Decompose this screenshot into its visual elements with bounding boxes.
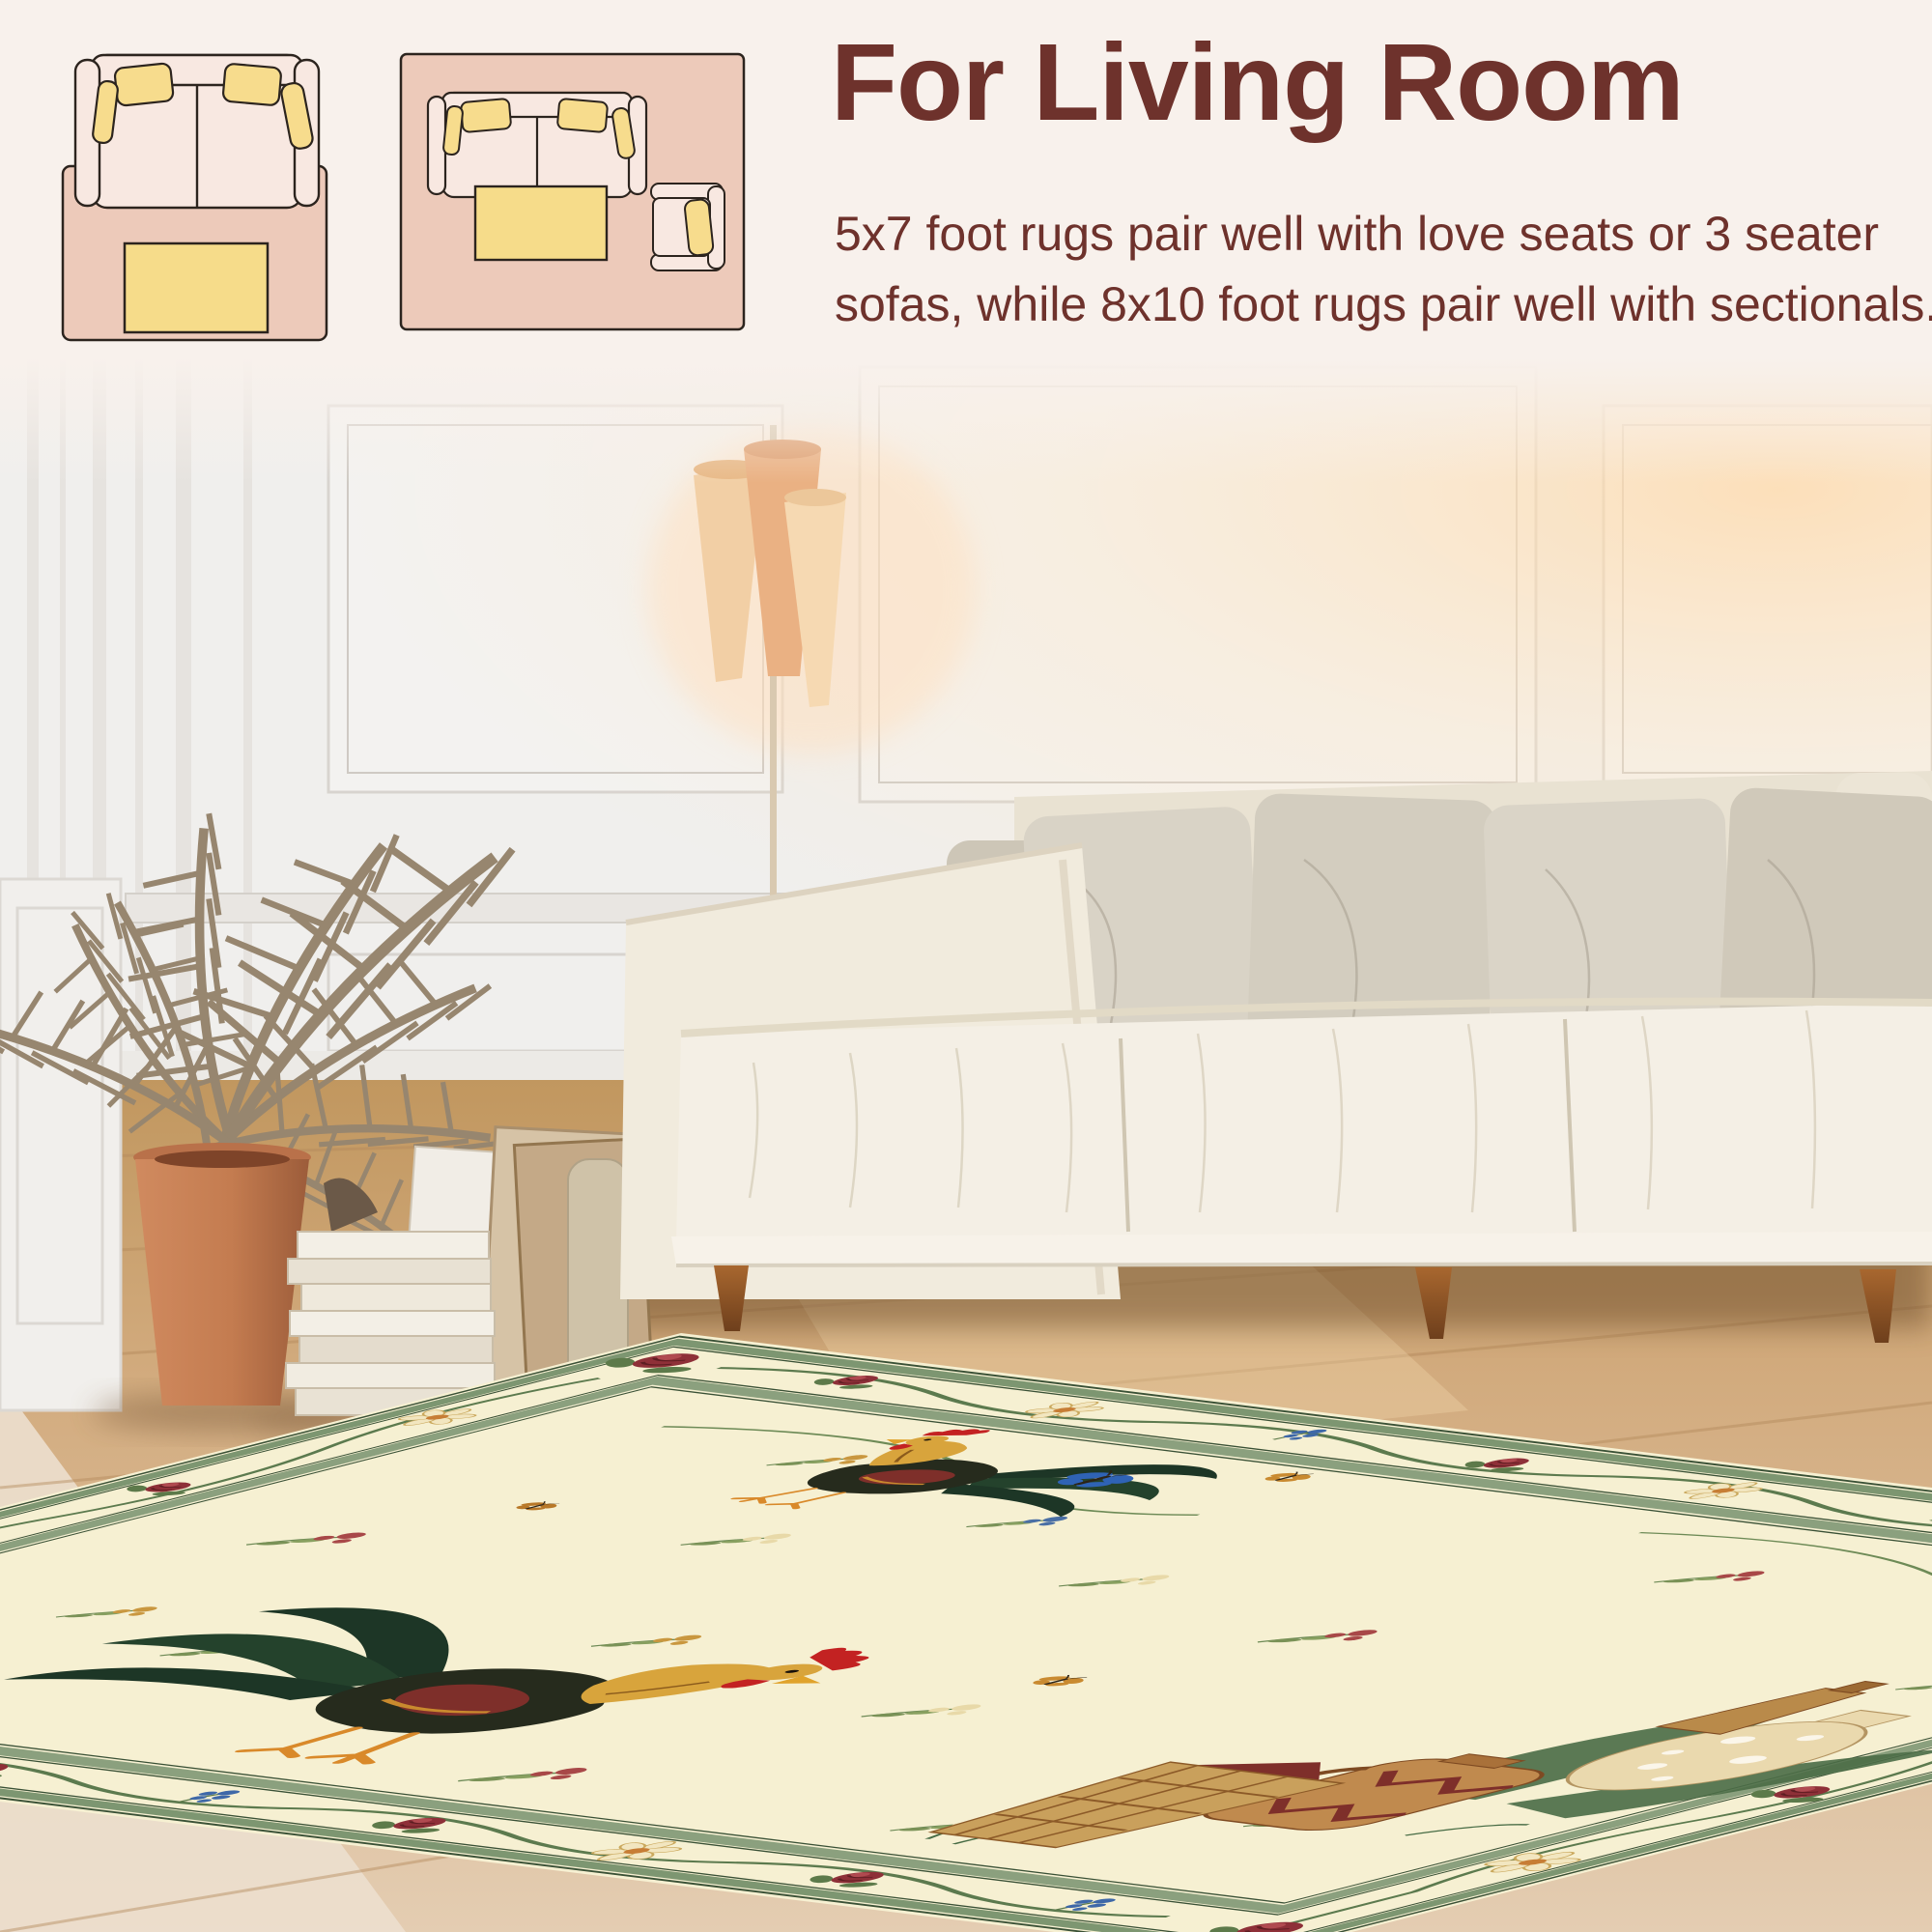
sofa-seat [676, 1002, 1932, 1241]
size-diagram-5x7 [39, 19, 357, 357]
description-text: 5x7 foot rugs pair well with love seats … [835, 199, 1932, 340]
sofa-armchair-on-rug-top-view-icon [401, 54, 744, 329]
description-line-2: sofas, while 8x10 foot rugs pair well wi… [835, 270, 1932, 340]
sofa-skirt [671, 1232, 1932, 1265]
terracotta-pot [135, 1159, 309, 1406]
page: 5x7 [0, 0, 1932, 1932]
top-fade [0, 357, 1932, 483]
size-diagram-8x10 [377, 29, 763, 377]
diagram-coffee-table [125, 243, 268, 332]
diagram-armchair-pillow [684, 199, 714, 256]
diagram-coffee-table-2 [475, 186, 607, 260]
living-room-photo [0, 357, 1932, 1932]
loveseat-on-rug-top-view-icon [63, 55, 327, 340]
page-title: For Living Room [831, 19, 1684, 145]
description-line-1: 5x7 foot rugs pair well with love seats … [835, 199, 1932, 270]
